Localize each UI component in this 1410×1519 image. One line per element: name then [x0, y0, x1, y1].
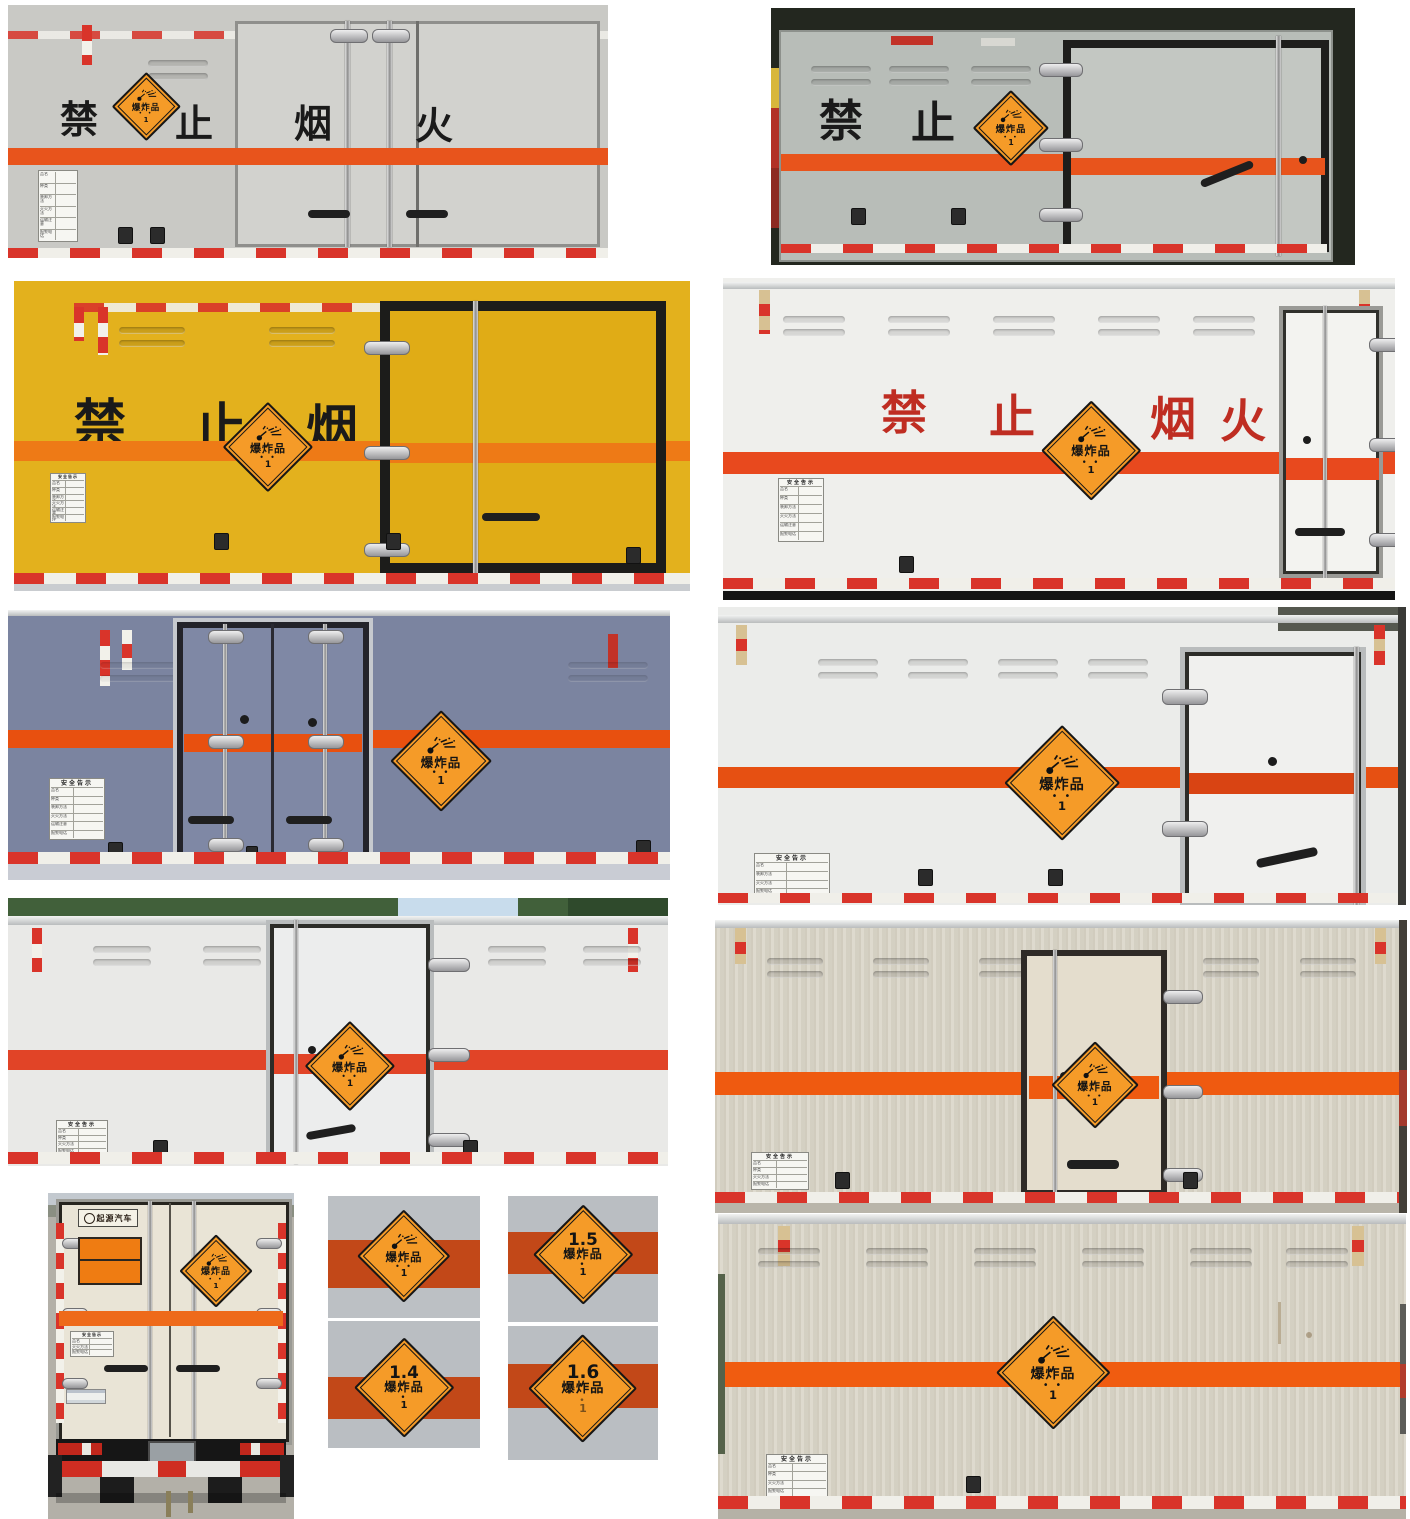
vent-slots [488, 946, 546, 966]
safety-row-value [90, 1350, 112, 1355]
vent-slots [568, 662, 648, 682]
vent-slots [1286, 1248, 1348, 1268]
safety-row-value [799, 514, 822, 522]
reflective-strip [715, 1192, 1407, 1203]
safety-notice-panel: 安全告示 品名 种类 灭火方法 报警电话 [766, 1454, 828, 1498]
safety-row-label: 种类 [768, 1472, 793, 1479]
corner-reflector [32, 928, 42, 972]
safety-notice-panel: 安全告示 品名 种类 灭火方法 报警电话 [751, 1152, 809, 1190]
explosive-placard: 爆炸品 • • 1 [1058, 1048, 1132, 1122]
door-lock-rod [1323, 306, 1327, 578]
hanging-strap [166, 1491, 171, 1517]
safety-row-label: 装卸方法 [40, 195, 56, 206]
door-latch [214, 533, 229, 550]
vent-slots [100, 662, 180, 682]
door-handle [176, 1365, 220, 1372]
corner-reflector [1375, 928, 1386, 964]
no-fire-char: 禁 [819, 100, 863, 144]
hinge-handle [308, 735, 344, 749]
vent-slots [269, 327, 335, 347]
roof-rail [718, 615, 1406, 623]
hinge-handle [256, 1378, 282, 1389]
background-vehicle-sliver [771, 108, 779, 168]
door-handle [406, 210, 448, 218]
vent-slots [866, 1248, 928, 1268]
explosion-burst-icon [1078, 1063, 1112, 1081]
safety-row-label: 品名 [780, 487, 799, 495]
background-vehicle-sliver [1400, 1364, 1406, 1398]
door-lock-rod [1276, 36, 1281, 256]
explosion-burst-icon [1031, 1344, 1075, 1367]
cargo-door [380, 301, 666, 573]
photo-truck-rear-white-red-text: 禁 止 烟 火 爆炸品 • • 1 安全告示 品名 [723, 278, 1395, 600]
safety-row-value [799, 523, 822, 531]
photo-placard-1-6: 1.6 爆炸品 • 1 [508, 1326, 658, 1460]
explosive-placard: 爆炸品 • • 1 [1005, 1324, 1101, 1420]
safety-row-value [66, 515, 84, 521]
safety-row-value [56, 207, 76, 218]
safety-row-label: 灭火方法 [40, 207, 56, 218]
orange-stripe [59, 1311, 283, 1326]
door-handle [104, 1365, 148, 1372]
no-fire-char: 火 [1220, 398, 1266, 444]
door-latch [1183, 1172, 1198, 1189]
placard-class-number: 1 [1058, 801, 1066, 812]
placard-class-number: 1 [579, 1268, 586, 1277]
bumper-sill [8, 864, 670, 880]
corner-reflector [736, 625, 747, 665]
corner-reflector [891, 36, 933, 45]
safety-row-value [799, 505, 822, 513]
reflective-strip [718, 1496, 1406, 1509]
background-vehicle-sliver [771, 168, 779, 228]
explosive-placard: 爆炸品 • • 1 [1013, 734, 1111, 832]
explosion-burst-icon [421, 736, 461, 757]
brand-name: 起源汽车 [97, 1213, 133, 1224]
placard-subclass: 1.6 [567, 1364, 600, 1382]
explosive-placard: 爆炸品 • • 1 [398, 718, 484, 804]
vent-slots [908, 659, 968, 679]
roof-rail [8, 610, 670, 616]
orange-stripe [1286, 458, 1379, 480]
explosive-placard-1-5: 1.5 爆炸品 • 1 [541, 1212, 625, 1296]
door-latch [899, 556, 914, 573]
explosive-placard: 爆炸品 • • 1 [979, 96, 1043, 160]
photo-truck-rear-gray-right: 禁 止 烟 火 爆炸品 • • 1 [771, 8, 1355, 265]
reflective-strip [718, 893, 1406, 903]
vent-slots [1098, 316, 1160, 336]
safety-row-label: 运输注意 [40, 218, 56, 229]
safety-notice-title: 安全告示 [756, 855, 828, 862]
safety-row-value [74, 788, 103, 795]
door-latch [1048, 869, 1063, 886]
safety-row-label: 品名 [51, 788, 74, 795]
corner-reflector [735, 928, 746, 964]
cargo-door [1063, 40, 1329, 252]
safety-row-label: 报警电话 [40, 230, 56, 241]
vent-slots [767, 958, 823, 978]
door-handle [1295, 528, 1345, 536]
door-latch [851, 208, 866, 225]
door-handle [286, 816, 332, 824]
explosion-burst-icon [251, 425, 286, 443]
wheel [280, 1455, 294, 1497]
explosive-placard: 爆炸品 • • 1 [230, 409, 306, 485]
corner-reflector [82, 25, 92, 65]
safety-row-label: 种类 [780, 496, 799, 504]
stain-mark [1306, 1332, 1312, 1338]
photo-truck-rear-slate: 爆炸品 • • 1 安全告示 品名 种类 装卸方法 灭火方法 运输注意 报警电话 [8, 610, 670, 880]
vent-slots [998, 659, 1058, 679]
roof-rail [715, 920, 1407, 928]
door-keyhole [1299, 156, 1307, 164]
no-fire-char: 禁 [60, 101, 98, 139]
safety-notice-title: 安全告示 [51, 780, 103, 787]
vent-slots [1300, 958, 1356, 978]
hinge-handle [1039, 208, 1083, 222]
bumper-sill [715, 1203, 1407, 1213]
reflective-strip [8, 852, 670, 864]
safety-row-value [74, 822, 103, 829]
trees-background [718, 1274, 725, 1454]
placard-class-number: 1 [347, 1080, 353, 1088]
placard-class-number: 1 [1087, 466, 1094, 475]
hinge-handle [308, 630, 344, 644]
safety-row-value [74, 814, 103, 821]
door-lock-rod [387, 21, 392, 247]
photo-truck-rear-weathered-plain: 爆炸品 • • 1 安全告示 品名 种类 灭火方法 报警电话 [718, 1214, 1406, 1519]
door-handle [482, 513, 540, 521]
safety-row-label: 灭火方法 [756, 881, 787, 889]
photo-placard-explosive: 爆炸品 • • 1 [328, 1196, 480, 1318]
vent-slots [818, 659, 878, 679]
safety-row-label: 品名 [756, 863, 787, 871]
safety-notice-panel: 安全告示 品名 灭火方法 报警电话 [70, 1331, 114, 1357]
roof-rail [718, 1214, 1406, 1224]
door-latch [150, 227, 165, 244]
orange-stripe [1071, 158, 1325, 175]
safety-row-value [793, 1472, 826, 1479]
blank-hazmat-plate [78, 1237, 142, 1285]
safety-row-value [799, 496, 822, 504]
hinge-handle [1039, 63, 1083, 77]
ground-shadow [56, 1493, 286, 1503]
door-keyhole [1268, 757, 1277, 766]
hinge-handle [308, 838, 344, 852]
hinge-handle [1369, 438, 1395, 452]
door-gap [271, 624, 274, 864]
vent-slots [1193, 316, 1255, 336]
hinge-handle [428, 1048, 470, 1062]
hinge-handle [256, 1238, 282, 1249]
placard-subclass: 1.4 [389, 1364, 419, 1381]
sky-background [398, 898, 518, 916]
safety-row-label: 品名 [40, 172, 56, 183]
safety-row-label: 灭火方法 [780, 514, 799, 522]
vent-slots [1082, 1248, 1144, 1268]
door-handle [308, 210, 350, 218]
safety-row-value [56, 230, 76, 241]
roof-rail [723, 282, 1395, 289]
vent-slots [1088, 659, 1148, 679]
corner-reflector [1374, 625, 1385, 665]
orange-stripe [8, 148, 608, 165]
placard-class-number: 1 [1008, 140, 1013, 147]
background-vehicle-sliver [771, 68, 779, 108]
stain-mark [1278, 1302, 1281, 1344]
placard-class-number: 1 [144, 117, 149, 123]
vent-slots [203, 946, 261, 966]
corner-reflector [1352, 1226, 1364, 1266]
hinge-handle [1369, 533, 1395, 547]
certification-label [66, 1389, 106, 1404]
blank-hazmat-plate-divider [78, 1259, 142, 1261]
safety-row-label: 灭火方法 [51, 814, 74, 821]
corner-reflector [759, 290, 770, 334]
taillight-cluster [58, 1443, 102, 1455]
no-fire-char: 止 [911, 102, 955, 146]
explosion-burst-icon [386, 1233, 422, 1252]
explosive-placard: 爆炸品 • • 1 [312, 1028, 388, 1104]
placard-class-number: 1 [1049, 1390, 1057, 1400]
safety-row-value [74, 797, 103, 804]
door-handle [188, 816, 234, 824]
vent-slots [583, 946, 641, 966]
explosive-placard: 爆炸品 • • 1 [365, 1217, 443, 1295]
taillight-cluster [240, 1443, 284, 1455]
hanging-strap [188, 1491, 193, 1513]
door-latch [918, 869, 933, 886]
placard-class-number: 1 [437, 777, 444, 786]
vent-slots [888, 316, 950, 336]
explosion-burst-icon [996, 109, 1025, 124]
door-latch [835, 1172, 850, 1189]
vent-slots [811, 66, 871, 86]
safety-row-label: 报警电话 [51, 831, 74, 838]
safety-row-label: 报警电话 [72, 1350, 90, 1355]
hinge-handle [1163, 1085, 1203, 1099]
safety-row-value [74, 831, 103, 838]
reflective-strip [14, 573, 690, 584]
safety-row-value [56, 218, 76, 229]
photo-placard-1-4: 1.4 爆炸品 • 1 [328, 1321, 480, 1448]
background [1399, 920, 1407, 1213]
truck-photo-collage: 禁 止 烟 火 爆炸品 • • 1 品名 种类 装卸方法 灭火方法 运输注意 报… [0, 0, 1410, 1519]
door-lock-rod [294, 920, 298, 1164]
photo-truck-rear-weathered-center-door: 爆炸品 • • 1 安全告示 品名 种类 灭火方法 报警电话 [715, 920, 1407, 1213]
reflective-strip [723, 578, 1395, 589]
hinge-handle [1163, 990, 1203, 1004]
corner-reflector [981, 38, 1015, 46]
safety-row-label: 装卸方法 [51, 805, 74, 812]
safety-row-label: 运输注意 [51, 822, 74, 829]
placard-class-number: 1 [213, 1283, 218, 1290]
safety-row-value [787, 881, 828, 889]
door-lock-rod [473, 301, 478, 573]
explosive-placard-1-4: 1.4 爆炸品 • 1 [362, 1345, 446, 1429]
door-lock-rod [1354, 647, 1359, 905]
explosive-placard: 爆炸品 • • 1 [117, 77, 175, 135]
no-fire-char: 止 [175, 105, 213, 143]
explosion-burst-icon [1072, 425, 1111, 445]
background [1398, 607, 1406, 905]
hinge-handle [364, 446, 410, 460]
vent-slots [974, 1248, 1036, 1268]
safety-row-label: 灭火方法 [768, 1481, 793, 1488]
safety-row-label: 运输注意 [780, 523, 799, 531]
door-latch [626, 547, 641, 564]
photo-truck-rear-yellow: 禁 止 烟 火 爆炸品 • • 1 安全告示 品名 [14, 281, 690, 591]
hinge-handle [364, 341, 410, 355]
safety-row-value [793, 1464, 826, 1471]
explosion-burst-icon [133, 89, 160, 103]
safety-row-label: 装卸方法 [756, 872, 787, 880]
safety-row-value [799, 487, 822, 495]
placard-class-number: 1 [400, 1401, 407, 1410]
vent-slots [93, 946, 151, 966]
safety-row-label: 品名 [768, 1464, 793, 1471]
explosive-placard-1-6: 1.6 爆炸品 • 1 [537, 1343, 629, 1435]
hinge-handle [428, 958, 470, 972]
safety-row-label: 报警电话 [52, 515, 66, 521]
safety-row-value [799, 532, 822, 540]
door-keyhole [240, 715, 249, 724]
photo-truck-rear-white-right-door: 爆炸品 • • 1 安全告示 品名 装卸方法 灭火方法 报警电话 [718, 607, 1406, 905]
safety-notice-panel: 品名 种类 装卸方法 灭火方法 运输注意 报警电话 [38, 170, 78, 242]
safety-notice-panel: 安全告示 品名 种类 装卸方法 灭火方法 运输注意 报警电话 [49, 778, 105, 840]
hinge-handle [208, 630, 244, 644]
safety-row-value [74, 805, 103, 812]
brand-plate: 起源汽车 [78, 1209, 138, 1227]
explosion-burst-icon [1039, 754, 1084, 778]
placard-class-number: 1 [579, 1404, 587, 1414]
safety-notice-panel: 安全告示 品名 种类 装卸方法 灭火方法 运输注意 报警电话 [50, 473, 86, 523]
door-latch [386, 533, 401, 550]
hinge-handle [208, 838, 244, 852]
brand-logo-icon [84, 1213, 95, 1224]
door-keyhole [1303, 436, 1311, 444]
vent-slots [971, 66, 1031, 86]
vent-slots [873, 958, 929, 978]
bumper-sill [14, 584, 690, 591]
safety-notice-title: 安全告示 [768, 1456, 826, 1463]
hinge-handle [330, 29, 368, 43]
safety-row-label: 报警电话 [780, 532, 799, 540]
safety-row-value [56, 195, 76, 206]
no-fire-char: 烟 [1150, 396, 1196, 442]
door-keyhole [308, 718, 317, 727]
safety-notice-panel: 安全告示 品名 种类 装卸方法 灭火方法 运输注意 报警电话 [778, 478, 824, 542]
ground-shadow [723, 591, 1395, 600]
vent-slots [1190, 1248, 1252, 1268]
orange-stripe [390, 443, 656, 463]
reflective-strip [781, 244, 1327, 253]
placard-subclass: 1.5 [568, 1231, 598, 1248]
hinge-handle [1162, 821, 1208, 837]
hinge-handle [372, 29, 410, 43]
hinge-handle [62, 1378, 88, 1389]
door-lock-rod [1053, 950, 1057, 1196]
vent-slots [1203, 958, 1259, 978]
photo-truck-rear-gray-left: 禁 止 烟 火 爆炸品 • • 1 品名 种类 装卸方法 灭火方法 运输注意 报… [8, 5, 608, 258]
vent-slots [758, 1248, 820, 1268]
photo-small-truck-full-rear: 起源汽车 爆炸品 • • 1 安全告示 品名 灭火方法 报警电话 [48, 1193, 294, 1519]
hinge-handle [1369, 338, 1395, 352]
vent-slots [783, 316, 845, 336]
door-handle [1067, 1160, 1119, 1169]
safety-row-value [56, 172, 76, 183]
no-fire-char: 烟 [294, 105, 332, 143]
hinge-handle [1039, 138, 1083, 152]
placard-class-number: 1 [265, 461, 271, 469]
hinge-handle [208, 735, 244, 749]
door-latch [118, 227, 133, 244]
photo-truck-rear-white-center-door: 爆炸品 • • 1 安全告示 品名 种类 灭火方法 报警电话 [8, 898, 668, 1166]
safety-row-value [56, 184, 76, 195]
safety-row-label: 装卸方法 [780, 505, 799, 513]
vent-slots [119, 327, 185, 347]
placard-class-number: 1 [1092, 1099, 1098, 1107]
safety-row-label: 种类 [40, 184, 56, 195]
orange-stripe [1189, 773, 1357, 794]
explosion-burst-icon [202, 1253, 231, 1268]
safety-row-label: 种类 [51, 797, 74, 804]
background-vehicle-sliver [1399, 1070, 1407, 1126]
no-fire-char: 火 [415, 107, 453, 145]
safety-row-label: 报警电话 [768, 1489, 793, 1496]
safety-row-value [793, 1481, 826, 1488]
safety-row-value [793, 1489, 826, 1496]
safety-row-value [787, 872, 828, 880]
photo-placard-1-5: 1.5 爆炸品 • 1 [508, 1196, 658, 1322]
cargo-door [1279, 306, 1383, 578]
placard-class-number: 1 [401, 1270, 408, 1278]
door-latch [951, 208, 966, 225]
hinge-handle [1162, 689, 1208, 705]
safety-row-value [787, 863, 828, 871]
corner-reflector [98, 307, 108, 355]
no-fire-char: 禁 [881, 390, 927, 436]
safety-notice-panel: 安全告示 品名 种类 灭火方法 报警电话 [56, 1120, 108, 1156]
wheel [48, 1455, 62, 1497]
door-latch [966, 1476, 981, 1493]
reflective-strip [8, 1152, 668, 1164]
safety-row-label: 报警电话 [753, 1182, 777, 1188]
bumper-red-mark [158, 1461, 186, 1477]
reflective-strip [8, 248, 608, 258]
no-fire-char: 止 [989, 394, 1035, 440]
explosive-placard: 爆炸品 • • 1 [185, 1240, 247, 1302]
explosive-placard: 爆炸品 • • 1 [1049, 408, 1133, 492]
bumper-sill [718, 1509, 1406, 1519]
corner-reflector [74, 307, 84, 341]
safety-row-value [777, 1182, 807, 1188]
vent-slots [993, 316, 1055, 336]
explosion-burst-icon [333, 1044, 368, 1062]
vent-slots [889, 66, 949, 86]
